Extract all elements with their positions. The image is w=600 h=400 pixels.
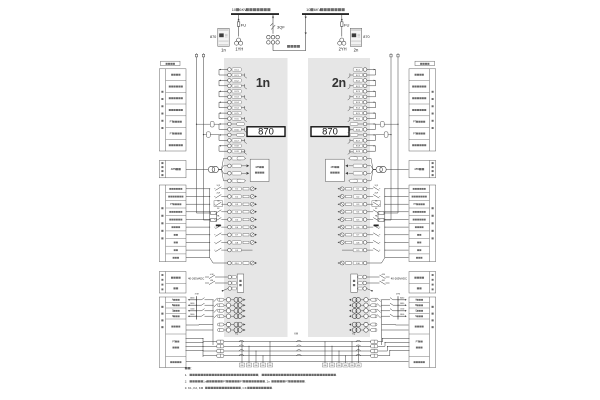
svg-text:870: 870 (210, 35, 216, 39)
svg-text:2YM: 2YM (396, 294, 400, 296)
svg-text:485: 485 (414, 167, 419, 171)
svg-text:630: 630 (241, 365, 244, 367)
svg-text:A630: A630 (190, 296, 194, 299)
svg-text:1n: 1n (221, 48, 226, 53)
svg-text:B630: B630 (190, 303, 194, 305)
svg-text:40-265VADC: 40-265VADC (391, 277, 407, 281)
svg-text:+KM: +KM (210, 274, 214, 276)
svg-text:1n: 1n (256, 76, 270, 90)
svg-text:2n: 2n (332, 76, 346, 90)
svg-text:1YM: 1YM (194, 294, 198, 296)
svg-text:1YH: 1YH (235, 46, 243, 51)
svg-text:40-265VADC: 40-265VADC (188, 277, 204, 281)
svg-text:B630: B630 (400, 303, 404, 305)
svg-text:630: 630 (344, 365, 347, 367)
svg-text:.: . (336, 373, 337, 377)
svg-text:N600: N600 (400, 314, 404, 316)
svg-text:, 2n: , 2n (265, 379, 270, 383)
svg-text:C630: C630 (400, 308, 404, 310)
svg-text:630: 630 (357, 365, 360, 367)
svg-text:630: 630 (331, 365, 334, 367)
svg-text:485: 485 (255, 165, 260, 169)
svg-text:FU: FU (344, 22, 349, 27)
svg-text:A630: A630 (400, 296, 404, 299)
svg-text:1n: 1n (203, 379, 207, 383)
svg-text:485: 485 (330, 165, 335, 169)
svg-text:2n: 2n (354, 48, 359, 53)
svg-text:870: 870 (258, 126, 274, 137)
svg-text:3. K1, K2, KM: 3. K1, K2, KM (185, 386, 204, 390)
svg-text:485: 485 (171, 167, 176, 171)
svg-text:870: 870 (363, 35, 369, 39)
svg-text:, CK: , CK (241, 386, 247, 390)
svg-text:.: . (272, 386, 273, 390)
svg-text::: : (191, 366, 192, 370)
svg-text:FU: FU (241, 22, 246, 27)
svg-text:630: 630 (262, 365, 265, 367)
svg-text:N600: N600 (190, 314, 194, 316)
svg-text:870: 870 (322, 126, 338, 137)
svg-text:,: , (258, 373, 259, 377)
svg-text:-KM: -KM (381, 280, 385, 282)
svg-text:1.: 1. (185, 373, 188, 377)
svg-text:630: 630 (324, 365, 327, 367)
svg-text:630: 630 (269, 365, 272, 367)
svg-text:+KM: +KM (381, 274, 385, 276)
svg-text:3QF: 3QF (277, 25, 285, 30)
svg-text:630: 630 (255, 365, 258, 367)
svg-text:630: 630 (351, 365, 354, 367)
svg-text:630: 630 (248, 365, 251, 367)
svg-text:C630: C630 (190, 308, 194, 310)
svg-text:2.: 2. (185, 379, 188, 383)
svg-text:-KM: -KM (210, 280, 214, 282)
svg-text:630: 630 (338, 365, 341, 367)
svg-text:2YH: 2YH (339, 46, 347, 51)
svg-text:KM: KM (294, 332, 298, 335)
